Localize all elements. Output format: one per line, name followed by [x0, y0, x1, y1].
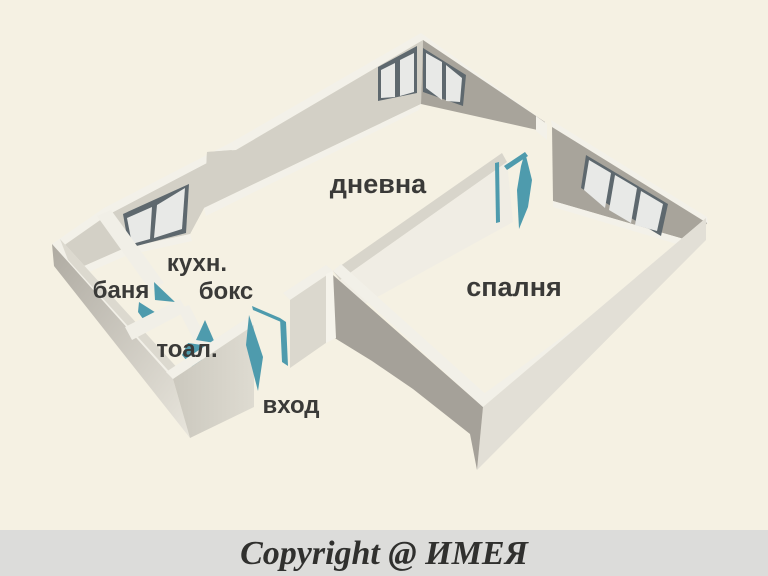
svg-text:тоал.: тоал. [156, 336, 217, 363]
svg-text:кухн.: кухн. [167, 250, 227, 277]
svg-text:спалня: спалня [466, 272, 562, 302]
svg-text:бокс: бокс [199, 278, 254, 305]
svg-text:баня: баня [93, 277, 150, 304]
svg-text:вход: вход [262, 392, 319, 419]
svg-text:Copyright @ ИМЕЯ: Copyright @ ИМЕЯ [240, 535, 529, 572]
svg-text:дневна: дневна [330, 169, 427, 199]
